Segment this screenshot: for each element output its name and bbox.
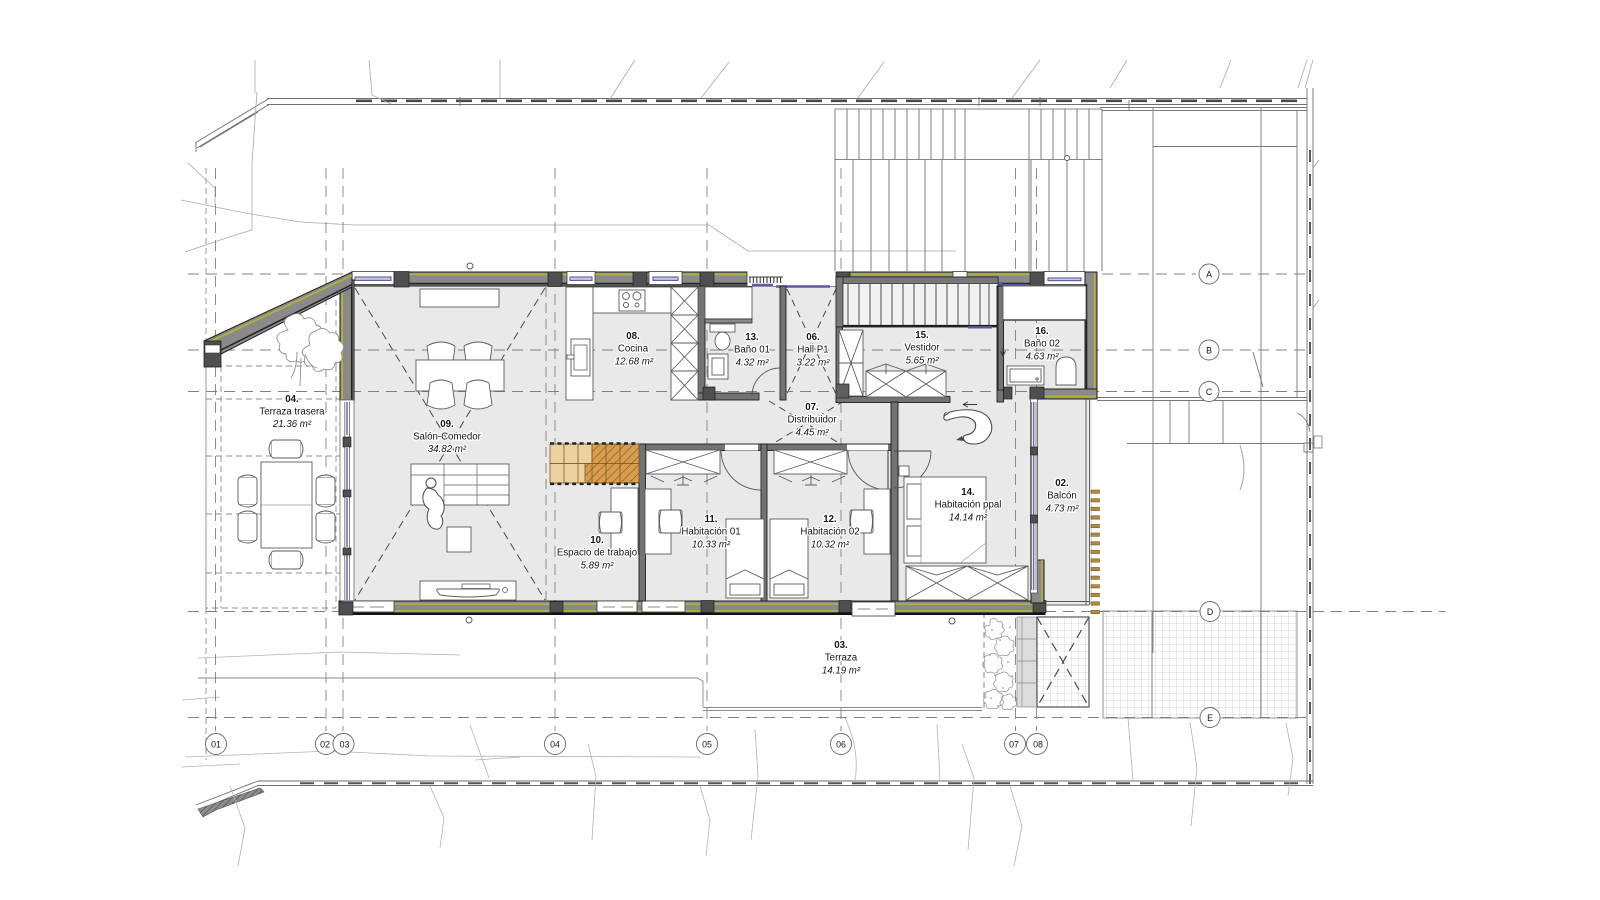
svg-text:Habitación 01: Habitación 01 — [681, 527, 740, 538]
svg-text:34.82 m²: 34.82 m² — [428, 444, 467, 455]
svg-text:4.45 m²: 4.45 m² — [796, 428, 830, 439]
svg-text:Habitación ppal: Habitación ppal — [935, 500, 1002, 511]
svg-text:03.: 03. — [834, 640, 848, 651]
svg-text:Terraza: Terraza — [825, 653, 858, 664]
svg-text:14.14 m²: 14.14 m² — [949, 513, 988, 524]
svg-text:10.: 10. — [590, 535, 604, 546]
svg-text:3.22 m²: 3.22 m² — [797, 358, 831, 369]
svg-text:Hall P1: Hall P1 — [797, 345, 828, 356]
svg-text:5.65 m²: 5.65 m² — [906, 356, 940, 367]
svg-text:02.: 02. — [1055, 478, 1069, 489]
svg-text:12.68 m²: 12.68 m² — [615, 357, 654, 368]
svg-text:21.36 m²: 21.36 m² — [272, 419, 312, 430]
svg-text:06: 06 — [836, 740, 846, 750]
svg-text:Baño 02: Baño 02 — [1024, 339, 1060, 350]
svg-text:12.: 12. — [823, 514, 837, 525]
svg-text:4.63 m²: 4.63 m² — [1026, 352, 1060, 363]
svg-text:05: 05 — [702, 740, 712, 750]
svg-text:4.32 m²: 4.32 m² — [736, 358, 770, 369]
svg-text:Salón-Comedor: Salón-Comedor — [413, 432, 482, 443]
svg-text:4.73 m²: 4.73 m² — [1046, 504, 1080, 515]
svg-text:10.33 m²: 10.33 m² — [692, 540, 731, 551]
svg-text:Balcón: Balcón — [1047, 491, 1077, 502]
svg-text:10.32 m²: 10.32 m² — [811, 540, 850, 551]
svg-text:5.89 m²: 5.89 m² — [581, 561, 615, 572]
svg-text:04.: 04. — [285, 394, 299, 405]
svg-text:02: 02 — [320, 740, 330, 750]
svg-text:C: C — [1206, 387, 1213, 397]
svg-text:11.: 11. — [705, 514, 718, 525]
svg-text:08.: 08. — [626, 331, 640, 342]
svg-text:Terraza trasera: Terraza trasera — [259, 407, 325, 418]
svg-text:Cocina: Cocina — [618, 344, 649, 355]
svg-text:07: 07 — [1009, 740, 1019, 750]
svg-text:07.: 07. — [805, 402, 819, 413]
svg-text:13.: 13. — [745, 332, 759, 343]
svg-text:08: 08 — [1033, 740, 1043, 750]
svg-text:15.: 15. — [915, 330, 929, 341]
svg-text:Distribuidor: Distribuidor — [788, 415, 838, 426]
svg-text:04: 04 — [550, 740, 560, 750]
svg-text:Habitación 02: Habitación 02 — [800, 527, 859, 538]
svg-text:D: D — [1207, 607, 1213, 617]
svg-text:B: B — [1206, 346, 1212, 356]
svg-text:E: E — [1207, 713, 1213, 723]
svg-text:09.: 09. — [440, 419, 454, 430]
svg-text:06.: 06. — [806, 332, 820, 343]
svg-text:03: 03 — [340, 740, 350, 750]
svg-text:Espacio de trabajo: Espacio de trabajo — [557, 548, 637, 559]
svg-text:Baño 01: Baño 01 — [734, 345, 770, 356]
svg-text:16.: 16. — [1035, 326, 1049, 337]
svg-text:14.19 m²: 14.19 m² — [822, 666, 861, 677]
svg-text:14.: 14. — [961, 487, 975, 498]
svg-text:01: 01 — [211, 740, 221, 750]
svg-text:A: A — [1206, 270, 1212, 280]
svg-text:Vestidor: Vestidor — [904, 343, 940, 354]
